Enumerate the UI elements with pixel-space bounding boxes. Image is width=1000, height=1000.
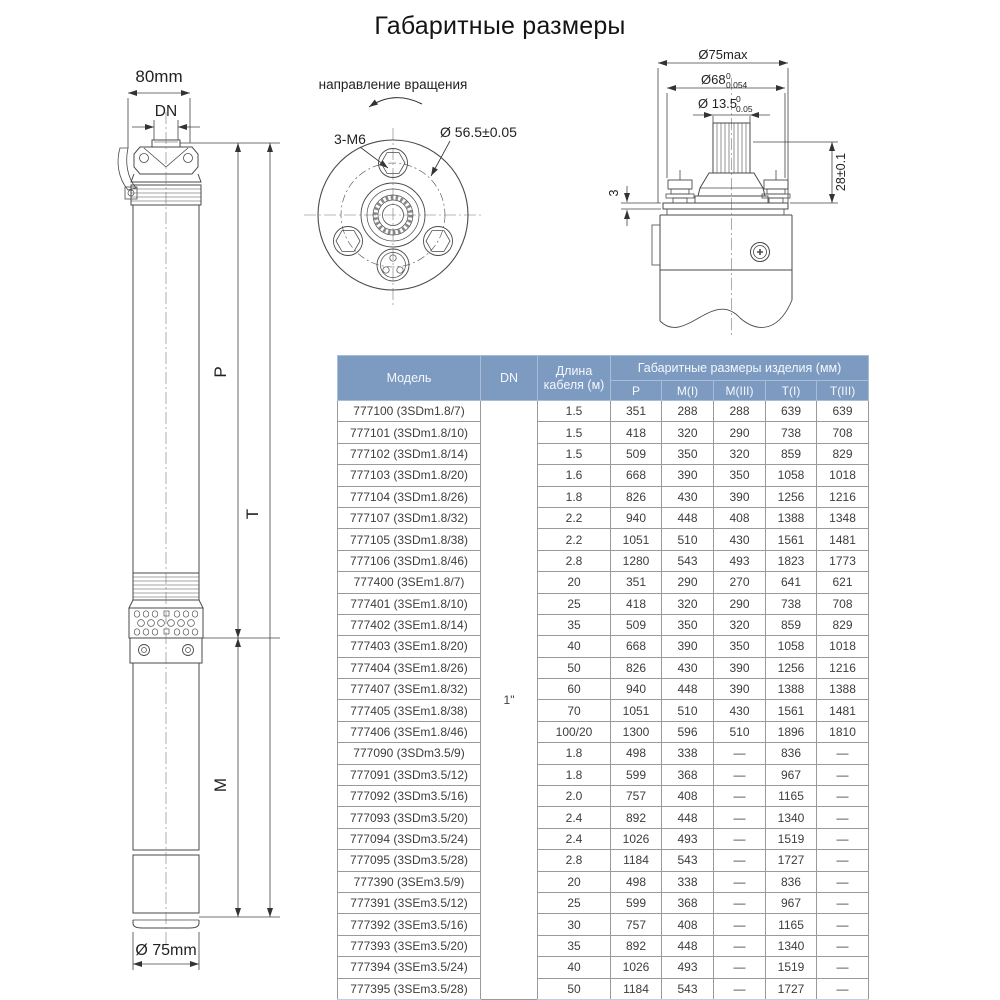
dim-d135-label: Ø 13.500.05 [698, 94, 753, 114]
flange-top-view-drawing: направление вращения 3-M6 Ø 56.5±0.05 [290, 62, 560, 312]
cell-t1: 1165 [766, 786, 817, 807]
cell-m1: 320 [662, 422, 714, 443]
table-row: 777102 (3SDm1.8/14)1.5509350320859829 [338, 443, 869, 464]
bolt-spec-label: 3-M6 [334, 131, 366, 147]
cell-p: 1026 [611, 957, 662, 978]
cell-p: 418 [611, 593, 662, 614]
header-m3: M(III) [714, 381, 766, 401]
cell-t3: — [817, 957, 869, 978]
cell-t1: 1561 [766, 700, 817, 721]
cell-cable: 50 [538, 978, 611, 1000]
cell-model: 777393 (3SEm3.5/20) [338, 935, 481, 956]
cell-t1: 859 [766, 443, 817, 464]
cell-m3: 320 [714, 443, 766, 464]
cell-t3: — [817, 743, 869, 764]
header-p: P [611, 381, 662, 401]
cell-t3: 829 [817, 443, 869, 464]
cell-cable: 1.8 [538, 743, 611, 764]
cell-m1: 543 [662, 550, 714, 571]
cell-p: 599 [611, 892, 662, 913]
rotation-direction-label: направление вращения [319, 77, 468, 92]
dim-dn-label: DN [155, 103, 177, 120]
cell-t1: 738 [766, 593, 817, 614]
cell-p: 1051 [611, 529, 662, 550]
cell-model: 777103 (3SDm1.8/20) [338, 465, 481, 486]
cell-model: 777093 (3SDm3.5/20) [338, 807, 481, 828]
cell-t3: — [817, 935, 869, 956]
cell-m1: 368 [662, 892, 714, 913]
cell-t3: 1388 [817, 679, 869, 700]
cell-p: 509 [611, 614, 662, 635]
table-body: 777100 (3SDm1.8/7)1"1.535128828863963977… [338, 401, 869, 1000]
cell-m3: — [714, 935, 766, 956]
cell-t1: 738 [766, 422, 817, 443]
cell-p: 1280 [611, 550, 662, 571]
dim-m-label: M [211, 778, 230, 792]
table-row: 777400 (3SEm1.8/7)20351290270641621 [338, 572, 869, 593]
cell-p: 940 [611, 507, 662, 528]
cell-m3: 510 [714, 721, 766, 742]
cell-model: 777102 (3SDm1.8/14) [338, 443, 481, 464]
cell-cable: 1.5 [538, 422, 611, 443]
cell-cable: 50 [538, 657, 611, 678]
header-model: Модель [338, 356, 481, 401]
table-row: 777407 (3SEm1.8/32)6094044839013881388 [338, 679, 869, 700]
bolt-circle-diameter-label: Ø 56.5±0.05 [440, 124, 517, 140]
cell-m1: 448 [662, 679, 714, 700]
cell-m1: 408 [662, 914, 714, 935]
cell-t3: 639 [817, 401, 869, 422]
cell-m3: 390 [714, 657, 766, 678]
cell-model: 777107 (3SDm1.8/32) [338, 507, 481, 528]
header-cable-length: Длина кабеля (м) [538, 356, 611, 401]
cell-p: 826 [611, 486, 662, 507]
cell-m3: 390 [714, 679, 766, 700]
header-dims-group: Габаритные размеры изделия (мм) [611, 356, 869, 381]
cell-m3: 270 [714, 572, 766, 593]
cell-model: 777094 (3SDm3.5/24) [338, 828, 481, 849]
cell-p: 351 [611, 572, 662, 593]
cell-model: 777392 (3SEm3.5/16) [338, 914, 481, 935]
cell-cable: 1.8 [538, 486, 611, 507]
cell-m1: 510 [662, 529, 714, 550]
cell-p: 509 [611, 443, 662, 464]
table-row: 777392 (3SEm3.5/16)30757408—1165— [338, 914, 869, 935]
cell-model: 777104 (3SDm1.8/26) [338, 486, 481, 507]
cell-t3: 1216 [817, 657, 869, 678]
header-t1: T(I) [766, 381, 817, 401]
table-row: 777090 (3SDm3.5/9)1.8498338—836— [338, 743, 869, 764]
cell-model: 777394 (3SEm3.5/24) [338, 957, 481, 978]
cell-m1: 408 [662, 786, 714, 807]
cell-model: 777402 (3SEm1.8/14) [338, 614, 481, 635]
cell-cable: 30 [538, 914, 611, 935]
cell-cable: 20 [538, 572, 611, 593]
cell-cable: 1.5 [538, 401, 611, 422]
cell-m3: — [714, 978, 766, 1000]
dim-p-label: P [211, 366, 230, 377]
cell-model: 777400 (3SEm1.8/7) [338, 572, 481, 593]
page: Габаритные размеры [0, 0, 1000, 1000]
cell-p: 940 [611, 679, 662, 700]
cell-t1: 1561 [766, 529, 817, 550]
cell-m3: — [714, 850, 766, 871]
cell-t3: 708 [817, 422, 869, 443]
cell-t3: 1018 [817, 636, 869, 657]
table-row: 777390 (3SEm3.5/9)20498338—836— [338, 871, 869, 892]
cell-m1: 448 [662, 807, 714, 828]
cell-model: 777405 (3SEm1.8/38) [338, 700, 481, 721]
table-row: 777105 (3SDm1.8/38)2.2105151043015611481 [338, 529, 869, 550]
cell-model: 777390 (3SEm3.5/9) [338, 871, 481, 892]
cell-m3: 350 [714, 636, 766, 657]
cell-model: 777101 (3SDm1.8/10) [338, 422, 481, 443]
cell-t1: 1896 [766, 721, 817, 742]
cell-t1: 1058 [766, 465, 817, 486]
cell-model: 777407 (3SEm1.8/32) [338, 679, 481, 700]
cell-model: 777395 (3SEm3.5/28) [338, 978, 481, 1000]
header-dn: DN [481, 356, 538, 401]
cell-t3: 1810 [817, 721, 869, 742]
cell-m3: 290 [714, 422, 766, 443]
dim-d75-bottom-label: Ø 75mm [135, 942, 196, 959]
cell-m3: — [714, 914, 766, 935]
cell-t1: 1727 [766, 850, 817, 871]
cell-cable: 1.8 [538, 764, 611, 785]
cell-t3: — [817, 892, 869, 913]
cell-t3: 1216 [817, 486, 869, 507]
cell-p: 668 [611, 636, 662, 657]
cell-t1: 1340 [766, 935, 817, 956]
cell-m1: 493 [662, 957, 714, 978]
cell-p: 892 [611, 935, 662, 956]
cell-cable: 20 [538, 871, 611, 892]
cell-t3: — [817, 786, 869, 807]
cell-t1: 1058 [766, 636, 817, 657]
cell-dn-merged: 1" [481, 401, 538, 1000]
cell-t3: — [817, 807, 869, 828]
cell-p: 498 [611, 743, 662, 764]
cell-m1: 448 [662, 935, 714, 956]
cell-p: 1026 [611, 828, 662, 849]
cell-cable: 2.2 [538, 507, 611, 528]
cell-p: 668 [611, 465, 662, 486]
cell-p: 892 [611, 807, 662, 828]
cell-m1: 288 [662, 401, 714, 422]
page-title: Габаритные размеры [0, 12, 1000, 41]
cell-t3: 1773 [817, 550, 869, 571]
cell-p: 1051 [611, 700, 662, 721]
cell-m1: 338 [662, 871, 714, 892]
cell-m3: — [714, 786, 766, 807]
cell-t1: 639 [766, 401, 817, 422]
cell-cable: 40 [538, 636, 611, 657]
cell-model: 777105 (3SDm1.8/38) [338, 529, 481, 550]
cell-m1: 430 [662, 486, 714, 507]
cell-model: 777401 (3SEm1.8/10) [338, 593, 481, 614]
rotation-arrow-icon [369, 98, 422, 107]
cell-t3: 1481 [817, 529, 869, 550]
cell-m3: 408 [714, 507, 766, 528]
cell-cable: 2.4 [538, 828, 611, 849]
cell-t1: 1256 [766, 657, 817, 678]
cell-model: 777092 (3SDm3.5/16) [338, 786, 481, 807]
cell-m3: — [714, 892, 766, 913]
cell-cable: 2.8 [538, 850, 611, 871]
table-row: 777094 (3SDm3.5/24)2.41026493—1519— [338, 828, 869, 849]
table-row: 777101 (3SDm1.8/10)1.5418320290738708 [338, 422, 869, 443]
table-row: 777395 (3SEm3.5/28)501184543—1727— [338, 978, 869, 1000]
cell-t3: — [817, 850, 869, 871]
dimensions-table: Модель DN Длина кабеля (м) Габаритные ра… [337, 355, 869, 1000]
cell-cable: 2.4 [538, 807, 611, 828]
cell-t3: 1018 [817, 465, 869, 486]
cell-m3: 430 [714, 700, 766, 721]
cell-t1: 967 [766, 892, 817, 913]
cell-cable: 40 [538, 957, 611, 978]
cell-t1: 1165 [766, 914, 817, 935]
cell-m3: 390 [714, 486, 766, 507]
table-row: 777093 (3SDm3.5/20)2.4892448—1340— [338, 807, 869, 828]
cell-cable: 25 [538, 593, 611, 614]
dim-t-label: T [243, 509, 262, 519]
cell-p: 418 [611, 422, 662, 443]
cell-m3: — [714, 807, 766, 828]
cell-t3: — [817, 764, 869, 785]
table-row: 777106 (3SDm1.8/46)2.8128054349318231773 [338, 550, 869, 571]
cell-p: 1184 [611, 850, 662, 871]
dim-3-label: 3 [607, 189, 621, 196]
cell-m3: — [714, 764, 766, 785]
cell-model: 777095 (3SDm3.5/28) [338, 850, 481, 871]
cell-m1: 368 [662, 764, 714, 785]
cell-t1: 1388 [766, 679, 817, 700]
table-row: 777100 (3SDm1.8/7)1"1.5351288288639639 [338, 401, 869, 422]
cell-m1: 320 [662, 593, 714, 614]
cell-cable: 35 [538, 935, 611, 956]
table-row: 777406 (3SEm1.8/46)100/20130059651018961… [338, 721, 869, 742]
header-m1: M(I) [662, 381, 714, 401]
cell-cable: 70 [538, 700, 611, 721]
cell-m3: 290 [714, 593, 766, 614]
pump-side-view-drawing: 80mm DN P T M Ø 75mm [80, 52, 320, 992]
cell-model: 777106 (3SDm1.8/46) [338, 550, 481, 571]
cell-m1: 596 [662, 721, 714, 742]
cell-m1: 543 [662, 850, 714, 871]
table-row: 777404 (3SEm1.8/26)5082643039012561216 [338, 657, 869, 678]
cell-model: 777403 (3SEm1.8/20) [338, 636, 481, 657]
cell-t1: 1256 [766, 486, 817, 507]
cell-cable: 60 [538, 679, 611, 700]
cell-cable: 35 [538, 614, 611, 635]
table-row: 777402 (3SEm1.8/14)35509350320859829 [338, 614, 869, 635]
cell-t3: 829 [817, 614, 869, 635]
cell-m3: 350 [714, 465, 766, 486]
cell-m1: 430 [662, 657, 714, 678]
table-row: 777095 (3SDm3.5/28)2.81184543—1727— [338, 850, 869, 871]
cell-t1: 859 [766, 614, 817, 635]
dim-80mm-label: 80mm [135, 67, 182, 86]
table-row: 777104 (3SDm1.8/26)1.882643039012561216 [338, 486, 869, 507]
cell-cable: 2.2 [538, 529, 611, 550]
cell-t1: 1388 [766, 507, 817, 528]
cell-t1: 1519 [766, 828, 817, 849]
cell-cable: 1.6 [538, 465, 611, 486]
cell-m1: 290 [662, 572, 714, 593]
cell-t1: 836 [766, 871, 817, 892]
dim-28-label: 28±0.1 [834, 153, 848, 191]
dimensions-table-wrap: Модель DN Длина кабеля (м) Габаритные ра… [337, 355, 868, 1000]
table-row: 777403 (3SEm1.8/20)4066839035010581018 [338, 636, 869, 657]
cell-p: 1300 [611, 721, 662, 742]
cell-t1: 1823 [766, 550, 817, 571]
header-t3: T(III) [817, 381, 869, 401]
table-row: 777107 (3SDm1.8/32)2.294044840813881348 [338, 507, 869, 528]
cell-m1: 543 [662, 978, 714, 1000]
cell-cable: 2.8 [538, 550, 611, 571]
cell-m1: 448 [662, 507, 714, 528]
cell-m1: 350 [662, 443, 714, 464]
cell-model: 777404 (3SEm1.8/26) [338, 657, 481, 678]
cell-p: 757 [611, 786, 662, 807]
dim-d75max-label: Ø75max [698, 47, 748, 62]
cell-m1: 390 [662, 465, 714, 486]
cell-cable: 100/20 [538, 721, 611, 742]
cell-m3: 288 [714, 401, 766, 422]
cell-cable: 2.0 [538, 786, 611, 807]
table-row: 777394 (3SEm3.5/24)401026493—1519— [338, 957, 869, 978]
cell-model: 777391 (3SEm3.5/12) [338, 892, 481, 913]
cell-t1: 1340 [766, 807, 817, 828]
cell-t1: 1727 [766, 978, 817, 1000]
cell-t3: — [817, 871, 869, 892]
cell-t1: 641 [766, 572, 817, 593]
table-row: 777393 (3SEm3.5/20)35892448—1340— [338, 935, 869, 956]
cell-model: 777406 (3SEm1.8/46) [338, 721, 481, 742]
table-row: 777103 (3SDm1.8/20)1.666839035010581018 [338, 465, 869, 486]
cell-t1: 836 [766, 743, 817, 764]
table-row: 777091 (3SDm3.5/12)1.8599368—967— [338, 764, 869, 785]
cell-p: 826 [611, 657, 662, 678]
table-row: 777092 (3SDm3.5/16)2.0757408—1165— [338, 786, 869, 807]
cell-p: 1184 [611, 978, 662, 1000]
cell-m3: 320 [714, 614, 766, 635]
cell-t3: 708 [817, 593, 869, 614]
cell-t3: 621 [817, 572, 869, 593]
table-row: 777405 (3SEm1.8/38)70105151043015611481 [338, 700, 869, 721]
cell-t1: 1519 [766, 957, 817, 978]
table-row: 777391 (3SEm3.5/12)25599368—967— [338, 892, 869, 913]
cell-cable: 1.5 [538, 443, 611, 464]
cell-t3: 1481 [817, 700, 869, 721]
cell-p: 599 [611, 764, 662, 785]
cell-m3: — [714, 957, 766, 978]
cell-model: 777090 (3SDm3.5/9) [338, 743, 481, 764]
cell-model: 777091 (3SDm3.5/12) [338, 764, 481, 785]
cell-p: 498 [611, 871, 662, 892]
cell-t1: 967 [766, 764, 817, 785]
cell-t3: — [817, 828, 869, 849]
dim-d68-label: Ø6800.054 [701, 71, 748, 90]
cell-m1: 493 [662, 828, 714, 849]
cell-m1: 350 [662, 614, 714, 635]
cell-t3: 1348 [817, 507, 869, 528]
cell-t3: — [817, 914, 869, 935]
cell-m3: — [714, 743, 766, 764]
cell-model: 777100 (3SDm1.8/7) [338, 401, 481, 422]
cell-m3: 493 [714, 550, 766, 571]
cell-m1: 510 [662, 700, 714, 721]
cell-p: 757 [611, 914, 662, 935]
cell-p: 351 [611, 401, 662, 422]
cell-t3: — [817, 978, 869, 1000]
cell-m1: 338 [662, 743, 714, 764]
cell-m3: 430 [714, 529, 766, 550]
table-row: 777401 (3SEm1.8/10)25418320290738708 [338, 593, 869, 614]
pump-head-detail-drawing: Ø75max Ø6800.054 Ø 13.500.05 28±0.1 3 [605, 38, 870, 350]
cell-m3: — [714, 828, 766, 849]
cell-m3: — [714, 871, 766, 892]
cell-m1: 390 [662, 636, 714, 657]
cell-cable: 25 [538, 892, 611, 913]
